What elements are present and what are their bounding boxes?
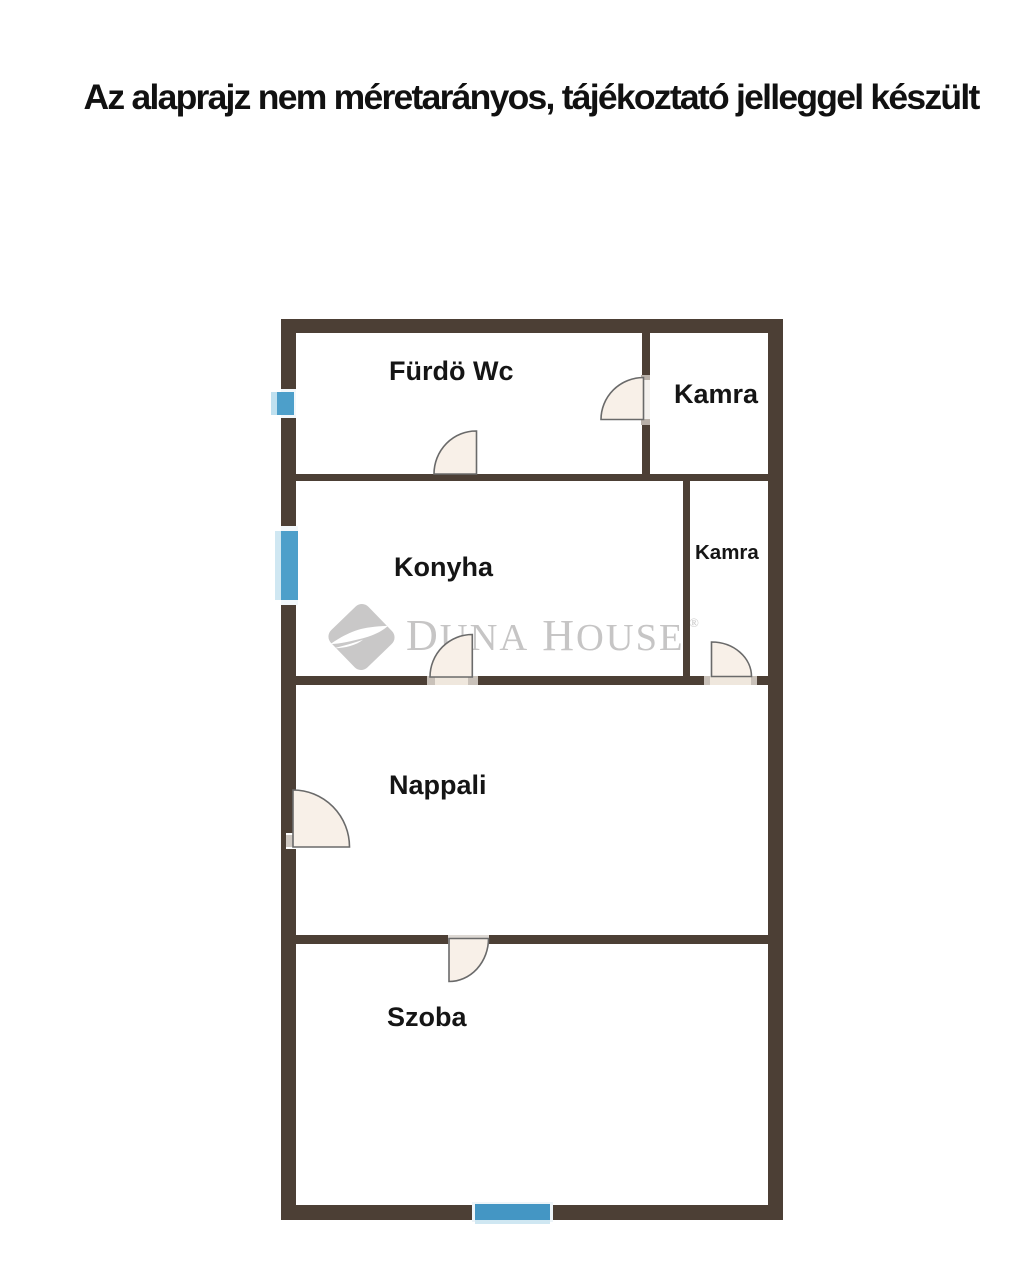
svg-text:®: ® xyxy=(689,615,699,630)
